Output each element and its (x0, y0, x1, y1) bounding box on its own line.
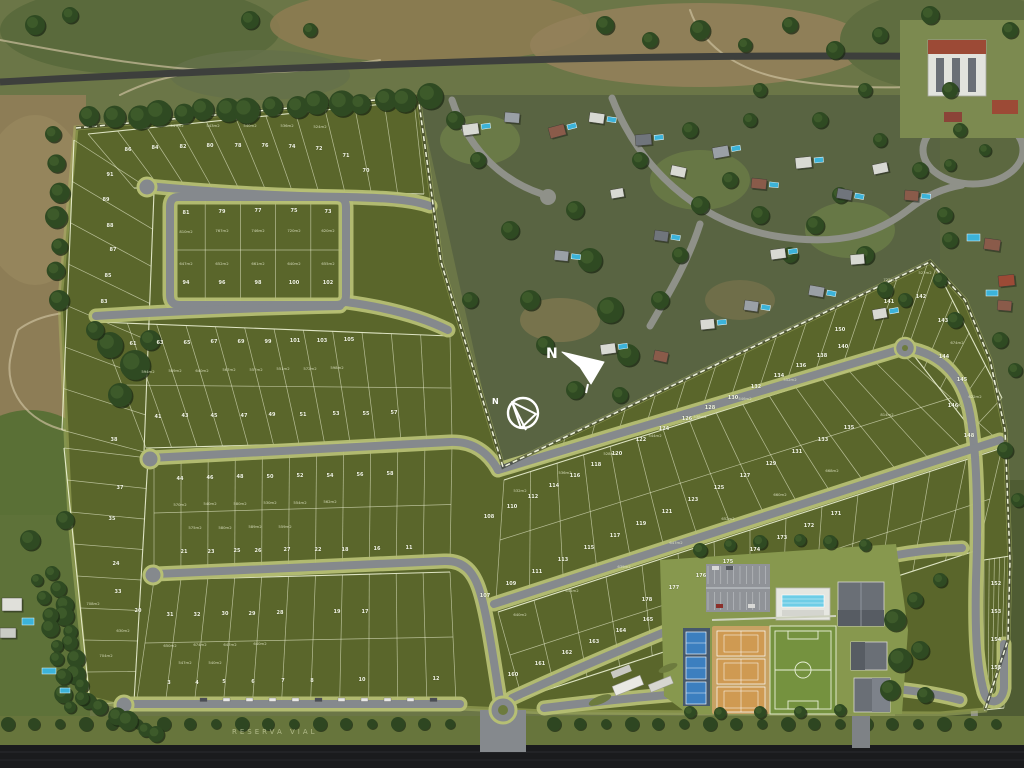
existing-cul-de-sac (540, 189, 556, 205)
svg-text:146: 146 (948, 403, 959, 409)
svg-text:79: 79 (219, 209, 226, 215)
swimming-pool (921, 193, 930, 199)
svg-text:83: 83 (101, 299, 108, 305)
svg-text:44: 44 (177, 476, 184, 482)
svg-text:23: 23 (208, 549, 215, 555)
svg-text:41: 41 (155, 414, 162, 420)
svg-text:121: 121 (662, 509, 673, 515)
svg-text:640m2: 640m2 (195, 368, 209, 373)
svg-text:4: 4 (195, 680, 199, 686)
swimming-pool (60, 688, 70, 693)
svg-text:622m2: 622m2 (968, 394, 982, 399)
svg-text:814m2: 814m2 (880, 412, 894, 417)
tennis-courts (712, 626, 770, 714)
svg-text:668m2: 668m2 (825, 468, 839, 473)
svg-text:35: 35 (109, 516, 116, 522)
house (997, 300, 1013, 313)
condo-building (900, 20, 1024, 138)
svg-text:124: 124 (659, 426, 670, 432)
svg-text:150: 150 (835, 327, 846, 333)
svg-text:161: 161 (535, 661, 546, 667)
svg-text:620m2: 620m2 (321, 228, 335, 233)
svg-text:103: 103 (317, 338, 328, 344)
svg-text:12: 12 (433, 676, 440, 682)
svg-text:56: 56 (357, 472, 364, 478)
svg-text:543m2: 543m2 (206, 123, 220, 128)
svg-text:528m2: 528m2 (603, 451, 617, 456)
svg-text:82: 82 (180, 144, 187, 150)
svg-text:155: 155 (991, 665, 1002, 671)
svg-text:598m2: 598m2 (330, 365, 344, 370)
svg-text:135: 135 (844, 425, 855, 431)
svg-text:98: 98 (255, 280, 262, 286)
svg-text:175: 175 (723, 559, 734, 565)
svg-text:557m2: 557m2 (249, 367, 263, 372)
north-label-small: N (492, 397, 499, 406)
svg-text:746m2: 746m2 (251, 228, 265, 233)
svg-text:154: 154 (991, 637, 1002, 643)
house (850, 254, 866, 267)
svg-text:71: 71 (343, 153, 350, 159)
parking-lot (706, 564, 770, 612)
svg-text:540m2: 540m2 (208, 660, 222, 665)
svg-text:136: 136 (796, 363, 807, 369)
svg-text:6: 6 (251, 679, 255, 685)
svg-text:640m2: 640m2 (253, 641, 267, 646)
svg-text:142: 142 (916, 294, 927, 300)
svg-text:67: 67 (211, 339, 218, 345)
svg-text:140: 140 (838, 344, 849, 350)
swimming-pool (782, 595, 824, 607)
masterplan-aerial-map: 8684828078767472717081797775739496981001… (0, 0, 1024, 768)
swimming-pool (22, 618, 34, 625)
svg-text:130: 130 (728, 395, 739, 401)
svg-text:144: 144 (939, 354, 950, 360)
swimming-pool (654, 135, 663, 141)
svg-text:75: 75 (291, 208, 298, 214)
svg-text:119: 119 (636, 521, 647, 527)
svg-text:74: 74 (289, 144, 296, 150)
svg-text:87: 87 (110, 247, 117, 253)
svg-text:16: 16 (374, 546, 381, 552)
svg-text:108: 108 (484, 514, 495, 520)
svg-text:22: 22 (315, 547, 322, 553)
svg-text:107: 107 (480, 593, 491, 599)
svg-text:630m2: 630m2 (116, 628, 130, 633)
svg-text:567m2: 567m2 (222, 367, 236, 372)
svg-text:11: 11 (406, 545, 413, 551)
svg-text:69: 69 (238, 339, 245, 345)
svg-text:117: 117 (610, 533, 621, 539)
swimming-pool (986, 290, 998, 296)
svg-text:640m2: 640m2 (513, 612, 527, 617)
svg-text:647m2: 647m2 (179, 261, 193, 266)
svg-text:88: 88 (107, 223, 114, 229)
svg-text:27: 27 (284, 547, 291, 553)
east-crossing (852, 716, 870, 748)
svg-text:29: 29 (249, 611, 256, 617)
svg-text:164: 164 (616, 628, 627, 634)
svg-text:77: 77 (255, 208, 262, 214)
svg-text:7: 7 (281, 678, 285, 684)
svg-text:810m2: 810m2 (179, 229, 193, 234)
svg-text:132: 132 (751, 384, 762, 390)
svg-text:580m2: 580m2 (233, 501, 247, 506)
svg-text:123: 123 (688, 497, 699, 503)
svg-text:3: 3 (167, 680, 171, 686)
house (504, 112, 521, 125)
svg-text:704m2: 704m2 (99, 653, 113, 658)
road-label: RESERVA VIAL (232, 728, 318, 736)
svg-text:552m2: 552m2 (783, 377, 797, 382)
svg-text:594m2: 594m2 (141, 369, 155, 374)
svg-text:559m2: 559m2 (278, 524, 292, 529)
svg-text:174: 174 (750, 547, 761, 553)
svg-text:101: 101 (290, 338, 301, 344)
svg-text:572m2: 572m2 (303, 366, 317, 371)
svg-text:530m2: 530m2 (263, 500, 277, 505)
svg-text:30: 30 (222, 611, 229, 617)
svg-text:589m2: 589m2 (248, 524, 262, 529)
svg-text:538m2: 538m2 (693, 414, 707, 419)
svg-text:58: 58 (387, 471, 394, 477)
svg-text:652m2: 652m2 (215, 261, 229, 266)
svg-text:551m2: 551m2 (276, 366, 290, 371)
svg-text:532m2: 532m2 (513, 488, 527, 493)
swimming-pool (717, 319, 726, 325)
svg-text:54: 54 (327, 473, 334, 479)
svg-text:540m2: 540m2 (203, 501, 217, 506)
svg-text:99: 99 (265, 339, 272, 345)
padel-courts (683, 628, 710, 706)
svg-text:163: 163 (589, 639, 600, 645)
svg-text:547m2: 547m2 (178, 660, 192, 665)
svg-text:540m2: 540m2 (243, 123, 257, 128)
svg-text:20: 20 (135, 608, 142, 614)
svg-text:570m2: 570m2 (173, 502, 187, 507)
svg-text:661m2: 661m2 (251, 261, 265, 266)
svg-text:47: 47 (241, 413, 248, 419)
svg-text:53: 53 (333, 411, 340, 417)
svg-text:177: 177 (669, 585, 680, 591)
svg-text:32: 32 (194, 612, 201, 618)
svg-text:100: 100 (289, 280, 300, 286)
svg-text:647m2: 647m2 (223, 642, 237, 647)
svg-text:562m2: 562m2 (323, 499, 337, 504)
svg-text:25: 25 (234, 548, 241, 554)
svg-text:127: 127 (740, 473, 751, 479)
svg-text:96: 96 (219, 280, 226, 286)
soccer-field (770, 626, 836, 714)
pool-building (776, 588, 830, 620)
svg-text:176: 176 (696, 573, 707, 579)
svg-text:89: 89 (103, 197, 110, 203)
outbuilding-roof (944, 112, 962, 122)
svg-text:31: 31 (167, 612, 174, 618)
svg-text:91: 91 (107, 172, 114, 178)
svg-text:145: 145 (957, 377, 968, 383)
swimming-pool (42, 668, 56, 674)
svg-text:86: 86 (125, 147, 132, 153)
svg-text:660m2: 660m2 (773, 492, 787, 497)
svg-text:10: 10 (359, 677, 366, 683)
svg-text:105: 105 (344, 337, 355, 343)
house (983, 238, 1002, 253)
svg-text:81: 81 (183, 210, 190, 216)
svg-text:50: 50 (267, 474, 274, 480)
svg-text:580m2: 580m2 (218, 525, 232, 530)
svg-text:165: 165 (643, 617, 654, 623)
svg-text:575m2: 575m2 (188, 525, 202, 530)
svg-text:143: 143 (938, 318, 949, 324)
svg-text:554m2: 554m2 (293, 500, 307, 505)
svg-text:112: 112 (528, 494, 539, 500)
svg-text:76: 76 (262, 143, 269, 149)
svg-text:152: 152 (991, 581, 1002, 587)
svg-text:115: 115 (584, 545, 595, 551)
svg-text:133: 133 (818, 437, 829, 443)
svg-text:647m2: 647m2 (669, 540, 683, 545)
svg-text:18: 18 (342, 547, 349, 553)
svg-text:639m2: 639m2 (617, 564, 631, 569)
svg-text:536m2: 536m2 (280, 123, 294, 128)
svg-text:652m2: 652m2 (721, 516, 735, 521)
svg-text:72: 72 (316, 146, 323, 152)
svg-text:21: 21 (181, 549, 188, 555)
svg-text:162: 162 (562, 650, 573, 656)
svg-text:126: 126 (682, 416, 693, 422)
svg-text:65: 65 (184, 340, 191, 346)
svg-text:24: 24 (113, 561, 120, 567)
svg-text:37: 37 (117, 485, 124, 491)
swimming-pool (671, 234, 681, 240)
svg-text:153: 153 (991, 609, 1002, 615)
svg-text:178: 178 (642, 597, 653, 603)
swimming-pool (607, 116, 617, 122)
svg-text:589m2: 589m2 (168, 368, 182, 373)
svg-text:102: 102 (323, 280, 334, 286)
house (2, 598, 24, 613)
svg-text:38: 38 (111, 437, 118, 443)
svg-text:138: 138 (817, 353, 828, 359)
swimming-pool (571, 254, 580, 260)
svg-text:55: 55 (363, 411, 370, 417)
svg-text:45: 45 (211, 413, 218, 419)
swimming-pool (788, 248, 798, 254)
sports-complex (660, 544, 908, 714)
svg-text:28: 28 (277, 610, 284, 616)
svg-text:674m2: 674m2 (950, 340, 964, 345)
svg-text:720m2: 720m2 (287, 228, 301, 233)
svg-text:110: 110 (507, 504, 518, 510)
svg-text:49: 49 (269, 412, 276, 418)
svg-text:125: 125 (714, 485, 725, 491)
svg-text:52: 52 (297, 473, 304, 479)
house (998, 274, 1017, 288)
svg-text:109: 109 (506, 581, 517, 587)
swimming-pool (967, 234, 980, 241)
svg-text:536m2: 536m2 (558, 470, 572, 475)
svg-text:129: 129 (766, 461, 777, 467)
swimming-pool (761, 304, 771, 310)
north-label-big: N (546, 346, 558, 362)
outbuilding-roof (992, 100, 1018, 114)
svg-text:708m2: 708m2 (86, 601, 100, 606)
svg-text:128: 128 (705, 405, 716, 411)
svg-text:19: 19 (334, 609, 341, 615)
map-canvas: 8684828078767472717081797775739496981001… (0, 0, 1024, 768)
svg-text:640m2: 640m2 (287, 261, 301, 266)
svg-text:51: 51 (300, 412, 307, 418)
svg-text:173: 173 (777, 535, 788, 541)
svg-text:80: 80 (207, 143, 214, 149)
svg-text:650m2: 650m2 (163, 643, 177, 648)
svg-text:57: 57 (391, 410, 398, 416)
svg-text:641m2: 641m2 (565, 588, 579, 593)
swimming-pool (618, 343, 628, 349)
svg-text:43: 43 (182, 413, 189, 419)
svg-text:767m2: 767m2 (215, 228, 229, 233)
svg-text:114: 114 (549, 483, 560, 489)
svg-text:544m2: 544m2 (648, 433, 662, 438)
svg-text:148: 148 (964, 433, 975, 439)
svg-text:33: 33 (115, 589, 122, 595)
svg-text:141: 141 (884, 299, 895, 305)
svg-text:113: 113 (558, 557, 569, 563)
svg-text:160: 160 (508, 672, 519, 678)
svg-text:48: 48 (237, 474, 244, 480)
swimming-pool (769, 182, 778, 188)
svg-text:524m2: 524m2 (313, 124, 327, 129)
svg-text:655m2: 655m2 (321, 261, 335, 266)
svg-text:547m2: 547m2 (170, 123, 184, 128)
svg-text:118: 118 (591, 462, 602, 468)
svg-text:84: 84 (152, 145, 159, 151)
svg-text:63: 63 (157, 340, 164, 346)
svg-text:73: 73 (325, 209, 332, 215)
svg-text:78: 78 (235, 143, 242, 149)
house (0, 628, 18, 640)
svg-text:8: 8 (310, 678, 314, 684)
svg-text:5: 5 (222, 679, 226, 685)
svg-text:46: 46 (207, 475, 214, 481)
svg-text:17: 17 (362, 609, 369, 615)
svg-text:111: 111 (532, 569, 543, 575)
svg-text:172: 172 (804, 523, 815, 529)
svg-text:94: 94 (183, 280, 190, 286)
svg-text:85: 85 (105, 273, 112, 279)
swimming-pool (481, 123, 491, 129)
svg-text:171: 171 (831, 511, 842, 517)
svg-text:61: 61 (130, 341, 137, 347)
svg-text:546m2: 546m2 (738, 396, 752, 401)
svg-text:122: 122 (636, 437, 647, 443)
svg-text:527m2: 527m2 (918, 270, 932, 275)
svg-text:70: 70 (363, 168, 370, 174)
svg-text:131: 131 (792, 449, 803, 455)
swimming-pool (814, 157, 823, 163)
svg-text:26: 26 (255, 548, 262, 554)
svg-text:674m2: 674m2 (193, 642, 207, 647)
svg-text:722m2: 722m2 (883, 277, 897, 282)
